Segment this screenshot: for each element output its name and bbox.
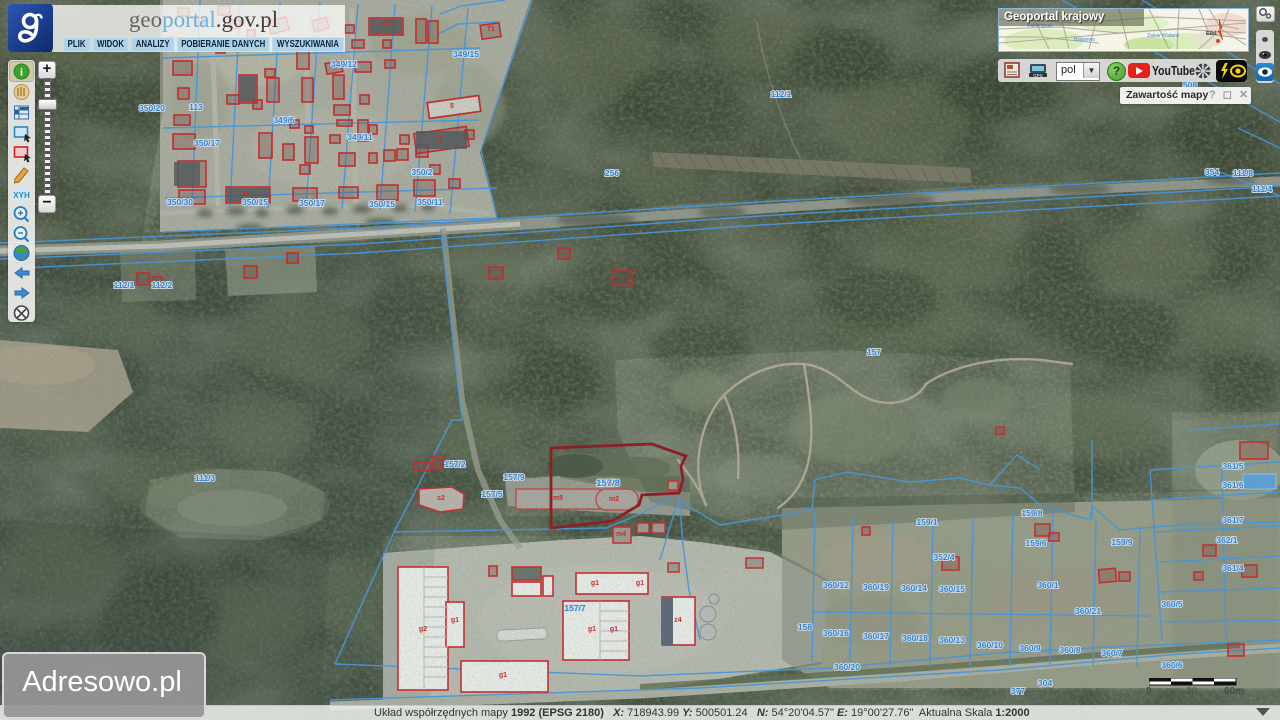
svg-text:XYH: XYH [13,191,30,200]
svg-text:GPS: GPS [1033,73,1043,78]
svg-text:Zalew Wislany: Zalew Wislany [1147,33,1180,39]
svg-text:i: i [20,67,23,79]
svg-text:Braniewo: Braniewo [1074,37,1095,43]
svg-text:Elbl.: Elbl. [1206,31,1218,37]
